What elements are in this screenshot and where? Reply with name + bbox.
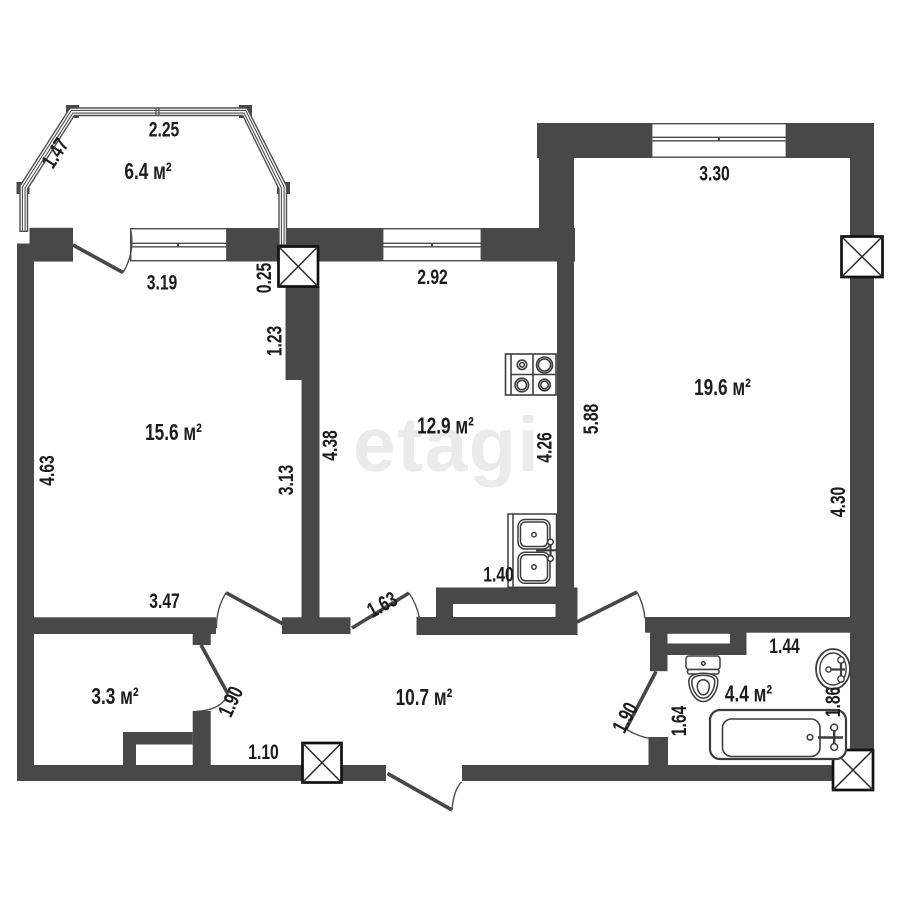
svg-text:1.64: 1.64 [667, 705, 691, 736]
svg-text:2.92: 2.92 [417, 265, 448, 289]
svg-text:3.30: 3.30 [699, 161, 730, 185]
svg-text:4.63: 4.63 [35, 455, 59, 486]
svg-text:3.19: 3.19 [147, 270, 178, 294]
svg-text:4.4 м²: 4.4 м² [725, 682, 772, 707]
svg-text:0.25: 0.25 [252, 263, 276, 294]
svg-text:4.38: 4.38 [318, 430, 342, 461]
svg-text:10.7 м²: 10.7 м² [396, 686, 453, 711]
svg-text:1.40: 1.40 [483, 562, 514, 586]
svg-text:5.88: 5.88 [579, 404, 603, 435]
svg-text:1.86: 1.86 [821, 687, 845, 718]
svg-text:1.44: 1.44 [769, 634, 800, 658]
svg-text:3.47: 3.47 [149, 589, 180, 613]
svg-text:3.3 м²: 3.3 м² [91, 685, 138, 710]
svg-text:19.6 м²: 19.6 м² [694, 376, 751, 401]
svg-text:3.13: 3.13 [274, 465, 298, 496]
svg-text:15.6 м²: 15.6 м² [145, 421, 202, 446]
svg-text:4.30: 4.30 [826, 487, 850, 518]
svg-text:1.10: 1.10 [248, 740, 279, 764]
svg-text:2.25: 2.25 [149, 117, 180, 141]
svg-text:6.4 м²: 6.4 м² [124, 160, 171, 185]
svg-text:1.23: 1.23 [262, 326, 286, 357]
svg-text:4.26: 4.26 [532, 432, 556, 463]
svg-text:12.9 м²: 12.9 м² [417, 414, 474, 439]
